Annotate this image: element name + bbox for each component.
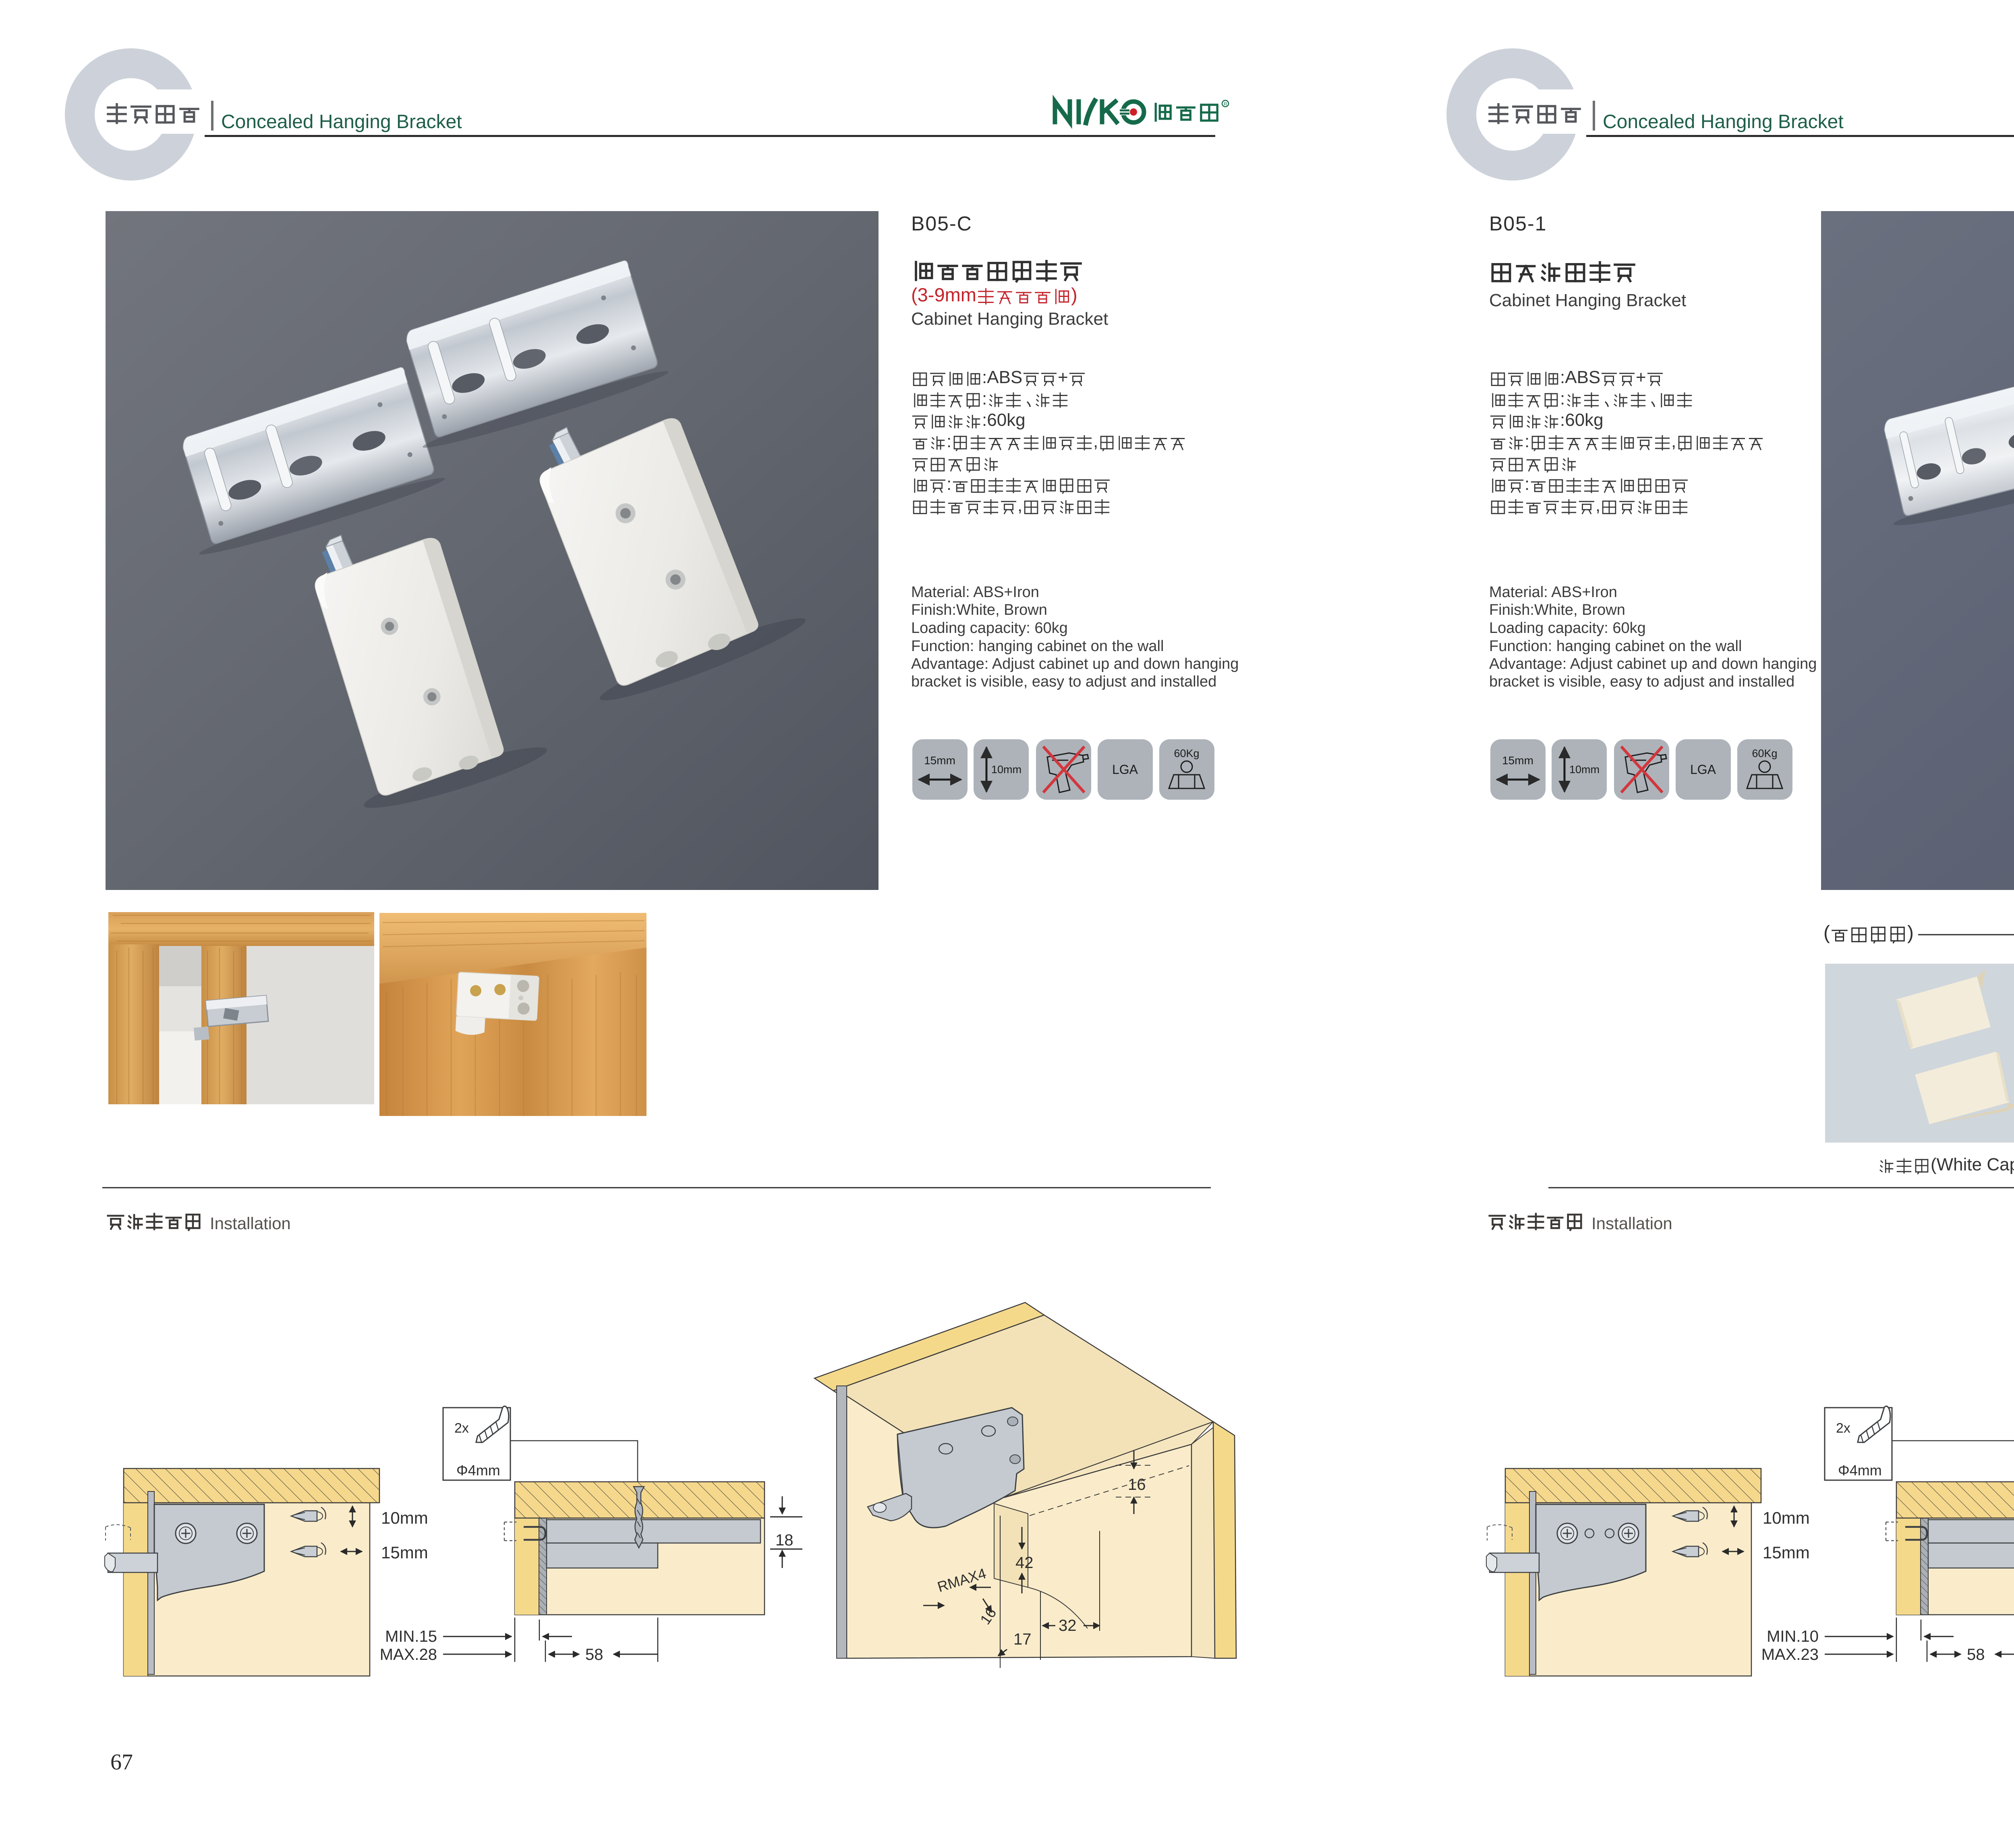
svg-text:Advantage: Adjust cabinet up a: Advantage: Adjust cabinet up and down ha… (911, 655, 1239, 672)
svg-text:Installation: Installation (210, 1214, 291, 1233)
svg-text:bracket is visible, easy to ad: bracket is visible, easy to adjust and i… (911, 673, 1216, 690)
svg-text:Finish:White, Brown: Finish:White, Brown (911, 601, 1047, 618)
svg-text::60kg: :60kg (1560, 410, 1604, 430)
svg-text:16: 16 (1128, 1476, 1146, 1493)
svg-text:58: 58 (585, 1646, 603, 1663)
svg-text:18: 18 (775, 1531, 794, 1549)
svg-text:15mm: 15mm (381, 1543, 428, 1562)
svg-text::: : (1525, 431, 1529, 451)
svg-text:LGA: LGA (1112, 762, 1138, 777)
svg-text::ABS: :ABS (982, 367, 1022, 387)
svg-text:+: + (1058, 367, 1068, 387)
svg-text::ABS: :ABS (1560, 367, 1600, 387)
svg-text:60Kg: 60Kg (1752, 747, 1777, 759)
svg-text:17: 17 (1013, 1630, 1032, 1648)
svg-text:Φ4mm: Φ4mm (1838, 1462, 1882, 1479)
svg-text:Advantage: Adjust cabinet up a: Advantage: Adjust cabinet up and down ha… (1489, 655, 1817, 672)
svg-text:10mm: 10mm (381, 1508, 428, 1527)
svg-text:MIN.10: MIN.10 (1767, 1628, 1819, 1645)
svg-text:42: 42 (1015, 1554, 1034, 1572)
svg-text::: : (947, 431, 951, 451)
svg-text:60Kg: 60Kg (1174, 747, 1199, 759)
svg-text:Cabinet Hanging Bracket: Cabinet Hanging Bracket (1489, 290, 1686, 310)
svg-text:,: , (1017, 496, 1022, 515)
svg-text::: : (1525, 474, 1529, 494)
svg-text:Concealed Hanging Bracket: Concealed Hanging Bracket (221, 111, 462, 133)
svg-text:Finish:White, Brown: Finish:White, Brown (1489, 601, 1625, 618)
svg-text:(White Cap): (White Cap) (1931, 1155, 2014, 1174)
svg-text::60kg: :60kg (982, 410, 1026, 430)
svg-text:2x: 2x (1836, 1421, 1850, 1436)
svg-text:MAX.28: MAX.28 (380, 1646, 437, 1663)
svg-text:,: , (1093, 431, 1098, 451)
svg-text:Concealed Hanging Bracket: Concealed Hanging Bracket (1603, 111, 1844, 133)
svg-text:bracket is visible, easy to ad: bracket is visible, easy to adjust and i… (1489, 673, 1794, 690)
svg-text:+: + (1636, 367, 1646, 387)
svg-text:): ) (1907, 922, 1914, 944)
svg-text:67: 67 (110, 1750, 133, 1775)
svg-text:Function: hanging cabinet on t: Function: hanging cabinet on the wall (1489, 638, 1742, 655)
svg-text::: : (982, 389, 987, 409)
svg-text:(: ( (1823, 922, 1830, 944)
svg-text:): ) (1071, 284, 1077, 305)
svg-text:Loading capacity: 60kg: Loading capacity: 60kg (1489, 620, 1646, 637)
svg-text:15mm: 15mm (1763, 1543, 1810, 1562)
svg-text:Material: ABS+Iron: Material: ABS+Iron (911, 584, 1039, 601)
svg-text:58: 58 (1967, 1646, 1985, 1663)
svg-text:B05-C: B05-C (911, 212, 972, 235)
svg-text:2x: 2x (454, 1421, 469, 1436)
svg-text:LGA: LGA (1690, 762, 1716, 777)
svg-text:32: 32 (1059, 1617, 1077, 1634)
svg-text:,: , (1671, 431, 1676, 451)
svg-text:(3-9mm: (3-9mm (911, 284, 976, 305)
svg-text:Loading capacity: 60kg: Loading capacity: 60kg (911, 620, 1068, 637)
svg-text:Function: hanging cabinet on t: Function: hanging cabinet on the wall (911, 638, 1164, 655)
svg-text:,: , (1595, 496, 1600, 515)
svg-text::: : (947, 474, 951, 494)
svg-text:MAX.23: MAX.23 (1761, 1646, 1819, 1663)
svg-text::: : (1560, 389, 1565, 409)
svg-text:15mm: 15mm (924, 754, 955, 767)
svg-text:10mm: 10mm (991, 763, 1022, 776)
svg-text:15mm: 15mm (1502, 754, 1533, 767)
svg-text:R: R (1224, 101, 1227, 107)
svg-text:Material: ABS+Iron: Material: ABS+Iron (1489, 584, 1617, 601)
svg-text:Installation: Installation (1591, 1214, 1672, 1233)
svg-text:Φ4mm: Φ4mm (456, 1462, 500, 1479)
svg-text:B05-1: B05-1 (1489, 212, 1547, 235)
svg-text:MIN.15: MIN.15 (385, 1628, 437, 1645)
svg-text:10mm: 10mm (1763, 1508, 1810, 1527)
svg-text:10mm: 10mm (1569, 763, 1600, 776)
svg-text:Cabinet Hanging Bracket: Cabinet Hanging Bracket (911, 309, 1108, 329)
